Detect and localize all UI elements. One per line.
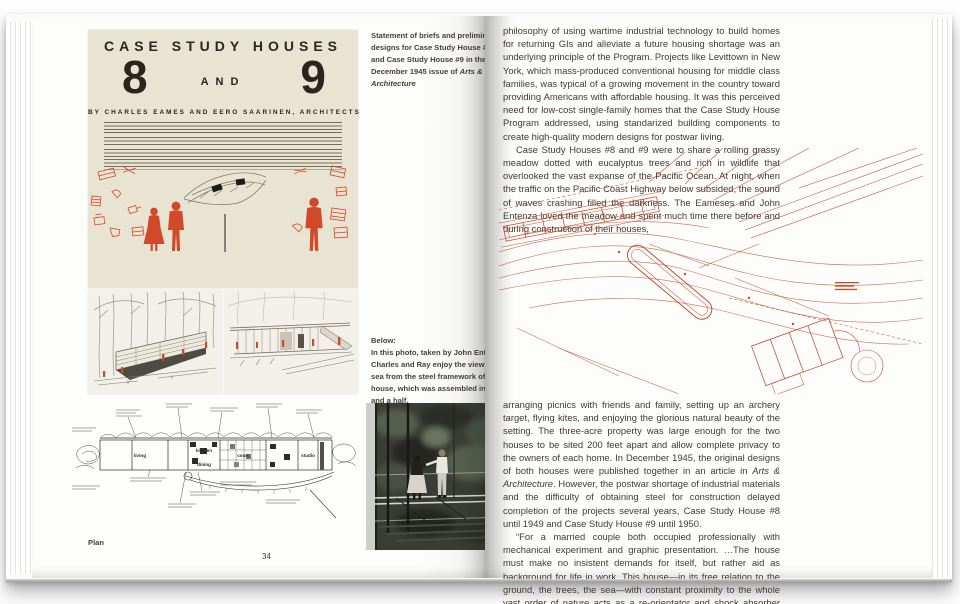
floor-plan-drawing: living kitchen dining court studio <box>70 398 366 534</box>
body-paragraph-3: arranging picnics with friends and famil… <box>503 398 780 530</box>
body-text-lower: arranging picnics with friends and famil… <box>503 398 780 604</box>
right-page-edges <box>932 18 952 578</box>
book-photograph: CASE STUDY HOUSES 8 AND 9 BY CHARLES EAM… <box>0 0 960 604</box>
plan-label-living: living <box>134 453 146 458</box>
grading-retaining-wall <box>623 241 716 323</box>
house-9-elevation-drawing <box>224 290 358 394</box>
red-man-silhouette <box>305 198 322 251</box>
right-page: philosophy of using wartime industrial t… <box>485 16 932 578</box>
cover-paragraph-simulated-1 <box>104 122 342 133</box>
sketch-house-9-block <box>236 178 246 185</box>
red-doodles-left <box>91 166 144 238</box>
paragraph-3-text: arranging picnics with friends and famil… <box>503 399 780 476</box>
plan-caption: Plan <box>88 537 148 549</box>
house-8-elevation-drawing <box>88 290 222 394</box>
book-spread: CASE STUDY HOUSES 8 AND 9 BY CHARLES EAM… <box>6 14 952 582</box>
magazine-cover: CASE STUDY HOUSES 8 AND 9 BY CHARLES EAM… <box>88 30 358 288</box>
body-paragraph-4: “For a married couple both occupied prof… <box>503 530 780 604</box>
site-sketch <box>184 173 266 205</box>
body-paragraph-1: philosophy of using wartime industrial t… <box>503 24 780 143</box>
red-couple-silhouette <box>144 202 185 251</box>
grading-annotation-text <box>835 282 859 290</box>
grading-plan-drawing <box>499 148 923 394</box>
cover-byline: BY CHARLES EAMES AND EERO SAARINEN, ARCH… <box>88 109 358 116</box>
left-page-edges <box>6 22 32 574</box>
statement-caption: Statement of briefs and preliminary desi… <box>371 30 503 90</box>
grading-house-8 <box>499 192 664 247</box>
cover-numeral-9: 9 <box>300 54 326 100</box>
page-number-left: 34 <box>262 552 271 561</box>
photo-caption-lead: Below: <box>371 336 396 345</box>
plan-label-studio: studio <box>301 453 315 458</box>
plan-label-dining: dining <box>197 462 211 467</box>
grading-house-9 <box>751 312 864 394</box>
cover-illustration <box>88 162 358 255</box>
plan-label-court: court <box>237 453 249 458</box>
left-page: CASE STUDY HOUSES 8 AND 9 BY CHARLES EAM… <box>32 16 485 578</box>
cover-paragraph-simulated-2 <box>104 137 342 145</box>
plan-label-kitchen: kitchen <box>196 448 212 453</box>
book-bottom-edge <box>6 579 952 582</box>
